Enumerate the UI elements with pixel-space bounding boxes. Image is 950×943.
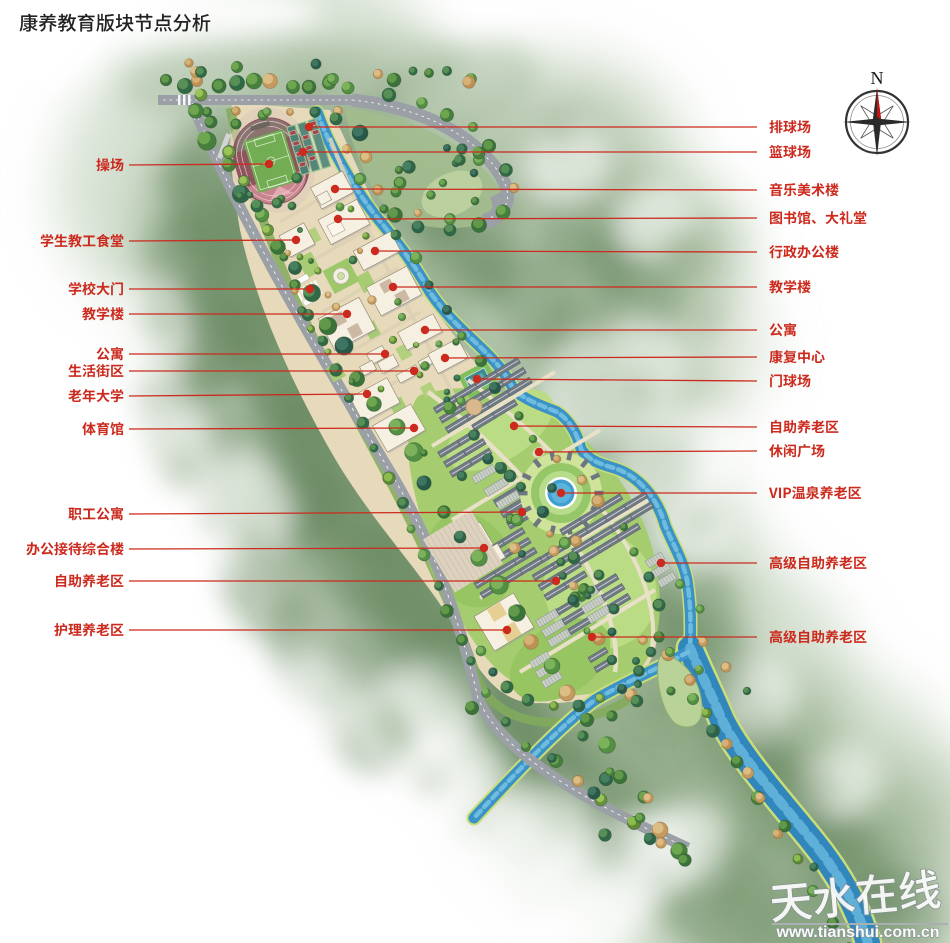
svg-text:www.tianshui.com.cn: www.tianshui.com.cn [776, 924, 940, 941]
svg-text:N: N [871, 68, 884, 88]
